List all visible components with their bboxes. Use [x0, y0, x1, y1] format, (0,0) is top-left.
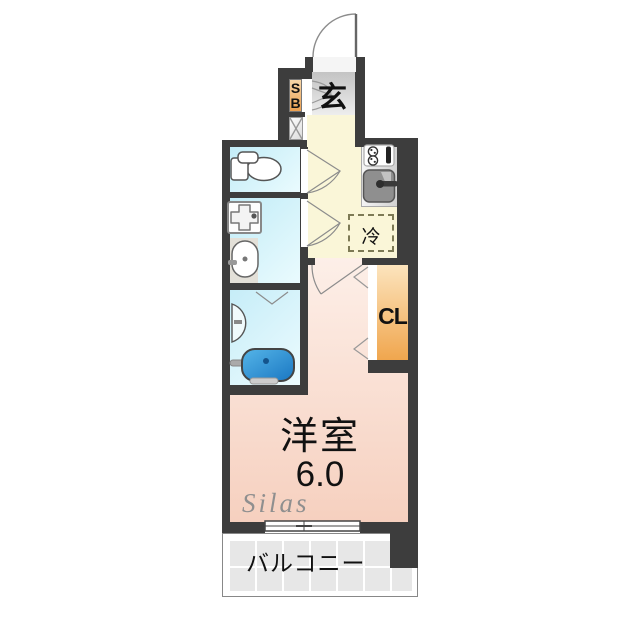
entrance-label: 玄	[318, 74, 347, 116]
refrigerator-label: 冷	[348, 222, 394, 249]
room-label: 洋室 6.0	[240, 417, 400, 493]
bathtub-icon	[230, 349, 294, 384]
shoe-box-label-s: S	[291, 81, 300, 96]
door-swing-icon	[307, 201, 340, 246]
washing-machine-pan-icon	[228, 202, 261, 233]
door-swing-icon	[307, 150, 340, 193]
pipe-space-x-icon	[290, 118, 302, 139]
floor-plan: 玄 S B 冷 CL 洋室 6.0 Silas バルコニー	[0, 0, 640, 640]
closet-label: CL	[377, 303, 408, 330]
entrance-door-swing-icon	[313, 14, 356, 57]
room-name: 洋室	[240, 417, 400, 457]
folding-door-chevron-icon	[232, 292, 288, 342]
sliding-window-icon	[265, 521, 360, 531]
kitchen-sink-icon	[364, 170, 399, 202]
door-swing-icon	[312, 265, 362, 294]
toilet-icon	[231, 152, 281, 181]
watermark: Silas	[242, 488, 310, 519]
folding-door-chevron-icon	[354, 267, 368, 359]
washbasin-icon	[228, 238, 258, 283]
shoe-box-label: S B	[289, 79, 302, 112]
gas-stove-icon	[364, 145, 394, 166]
shoe-box-label-b: B	[290, 96, 300, 111]
balcony-label: バルコニー	[246, 544, 366, 578]
